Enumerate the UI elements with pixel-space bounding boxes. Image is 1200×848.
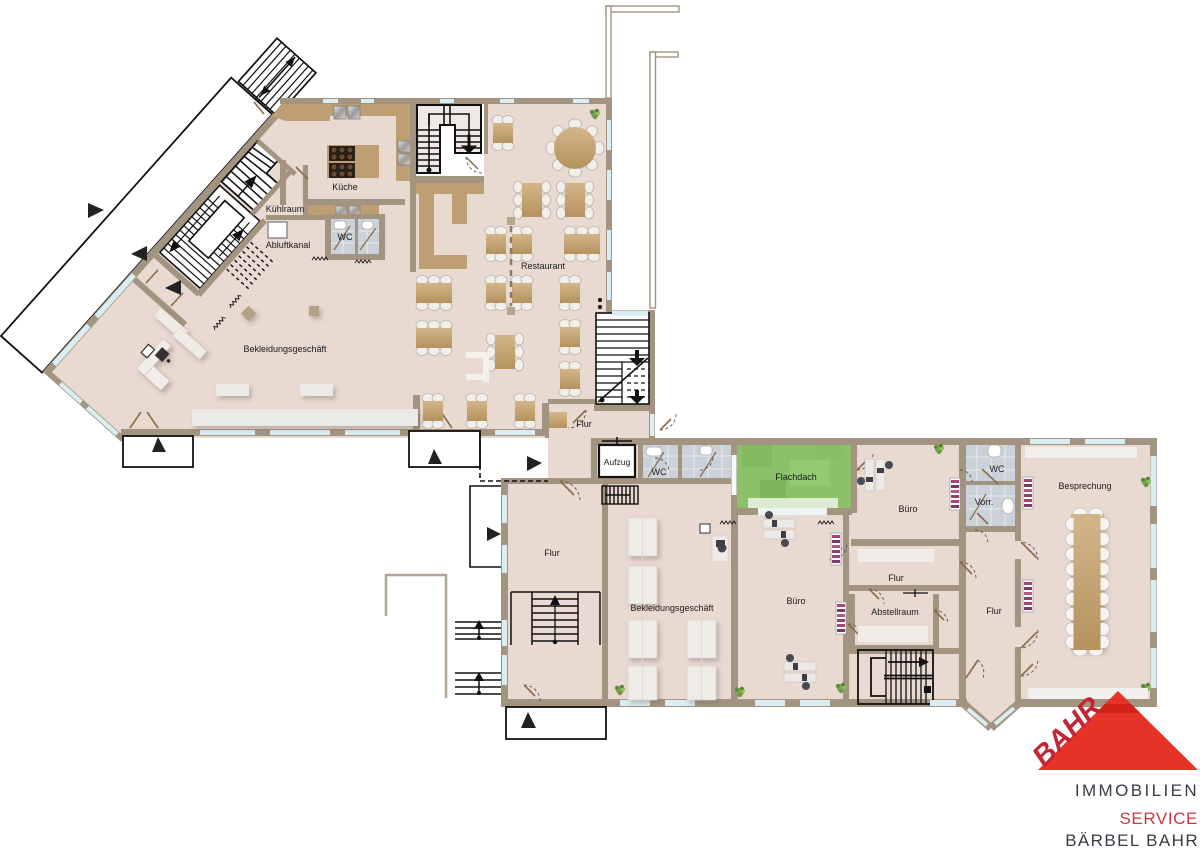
svg-text:Bekleidungsgeschäft: Bekleidungsgeschäft xyxy=(243,344,327,354)
svg-text:Flur: Flur xyxy=(544,548,560,558)
svg-text:Abluftkanal: Abluftkanal xyxy=(266,240,311,250)
svg-text:Restaurant: Restaurant xyxy=(521,261,566,271)
svg-text:Küche: Küche xyxy=(332,182,358,192)
svg-text:WC: WC xyxy=(338,232,353,242)
svg-text:Flur: Flur xyxy=(576,419,592,429)
svg-text:WC: WC xyxy=(990,464,1005,474)
svg-text:Aufzug: Aufzug xyxy=(604,457,631,467)
svg-text:Flur: Flur xyxy=(888,573,904,583)
svg-text:WC: WC xyxy=(652,467,667,477)
svg-text:Besprechung: Besprechung xyxy=(1058,481,1111,491)
svg-text:Flachdach: Flachdach xyxy=(775,472,817,482)
svg-text:Flur: Flur xyxy=(986,606,1002,616)
svg-text:BÄRBEL BAHR: BÄRBEL BAHR xyxy=(1065,831,1199,848)
svg-text:Kühlraum: Kühlraum xyxy=(266,204,305,214)
svg-text:SERVICE: SERVICE xyxy=(1119,809,1198,828)
svg-text:Abstellraum: Abstellraum xyxy=(871,607,919,617)
svg-text:Büro: Büro xyxy=(786,596,805,606)
svg-text:Büro: Büro xyxy=(898,504,917,514)
svg-text:Vorr.: Vorr. xyxy=(975,497,994,507)
svg-text:IMMOBILIEN: IMMOBILIEN xyxy=(1075,781,1199,800)
svg-text:Bekleidungsgeschäft: Bekleidungsgeschäft xyxy=(630,603,714,613)
